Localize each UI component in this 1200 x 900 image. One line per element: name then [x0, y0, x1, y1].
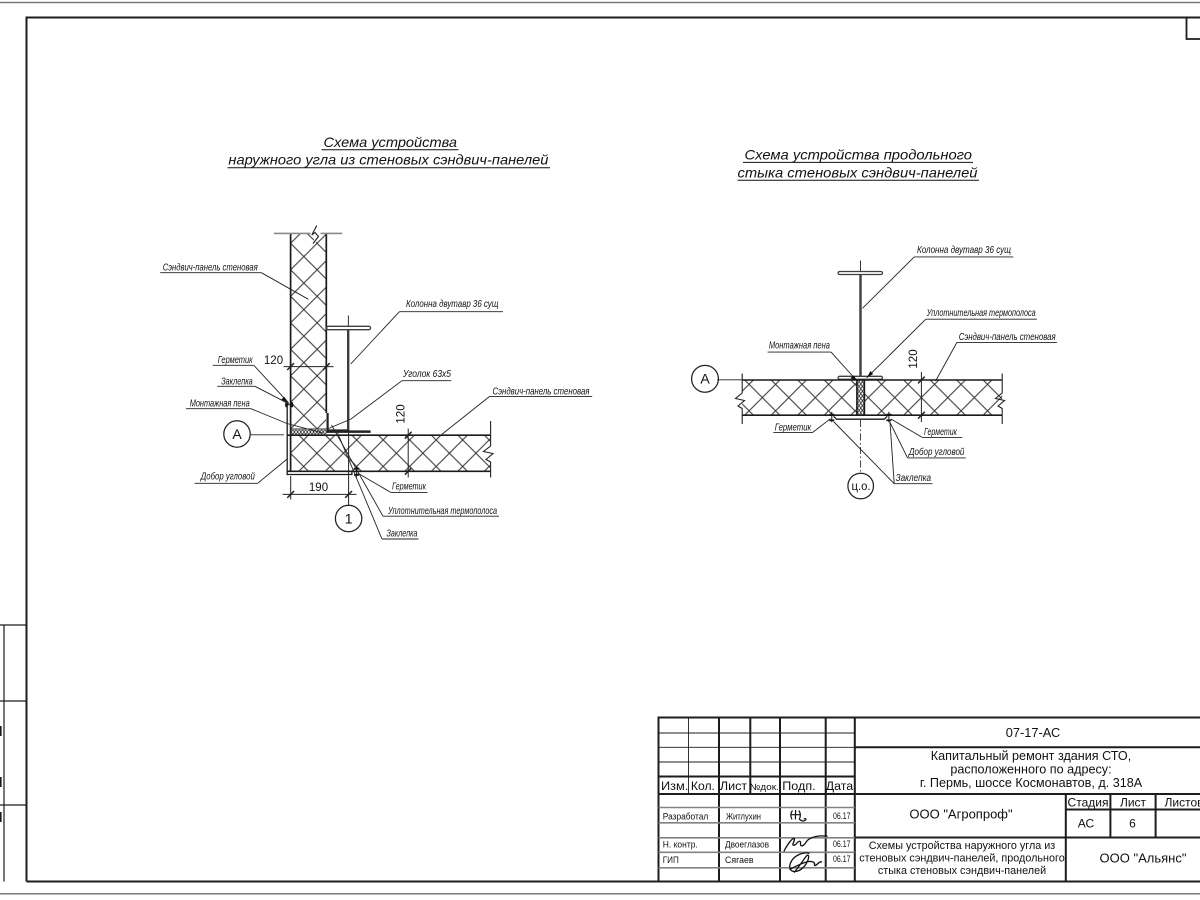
- svg-text:стеновых сэндвич-панелей, прод: стеновых сэндвич-панелей, продольного: [859, 853, 1064, 865]
- svg-text:Уголок 63х5: Уголок 63х5: [402, 368, 451, 380]
- svg-text:АС: АС: [1078, 817, 1095, 831]
- svg-text:Сэндвич-панель стеновая: Сэндвич-панель стеновая: [959, 331, 1056, 343]
- svg-text:А: А: [232, 426, 242, 442]
- svg-text:г. Пермь, шоссе Космонавтов, д: г. Пермь, шоссе Космонавтов, д. 318А: [920, 776, 1143, 790]
- svg-text:ГИП: ГИП: [663, 855, 679, 865]
- svg-text:Изм.: Изм.: [661, 781, 688, 793]
- svg-text:Заклепка: Заклепка: [221, 375, 253, 387]
- svg-text:06.17: 06.17: [833, 839, 851, 849]
- svg-text:Герметик: Герметик: [775, 422, 812, 434]
- svg-text:06.17: 06.17: [833, 811, 851, 821]
- svg-text:Кол.: Кол.: [691, 781, 715, 793]
- svg-text:Герметик: Герметик: [924, 426, 958, 438]
- svg-text:06.17: 06.17: [833, 854, 851, 864]
- svg-text:№док.: №док.: [750, 782, 779, 792]
- svg-text:Герметик: Герметик: [392, 481, 427, 493]
- svg-text:07-17-АС: 07-17-АС: [1006, 725, 1061, 740]
- svg-text:Подп.: Подп.: [782, 781, 815, 793]
- svg-text:ООО "Альянс": ООО "Альянс": [1100, 851, 1187, 866]
- svg-text:190: 190: [309, 482, 328, 494]
- svg-text:Колонна двутавр 36 сущ: Колонна двутавр 36 сущ: [406, 298, 499, 310]
- svg-text:расположенного по адресу:: расположенного по адресу:: [950, 763, 1111, 777]
- svg-text:ц.о.: ц.о.: [852, 481, 871, 493]
- svg-text:Схема устройства продольного: Схема устройства продольного: [745, 147, 973, 163]
- svg-text:Схемы устройства наружного угл: Схемы устройства наружного угла из: [869, 840, 1056, 852]
- svg-text:Заклепка: Заклепка: [896, 472, 932, 484]
- svg-text:Герметик: Герметик: [218, 354, 254, 366]
- svg-text:Лист: Лист: [720, 781, 748, 793]
- svg-text:Капитальный ремонт здания СТО,: Капитальный ремонт здания СТО,: [931, 749, 1131, 763]
- svg-text:Дата: Дата: [826, 781, 854, 793]
- svg-text:Разработал: Разработал: [663, 812, 709, 822]
- svg-text:120: 120: [264, 355, 283, 367]
- svg-text:Сэндвич-панель стеновая: Сэндвич-панель стеновая: [493, 385, 590, 397]
- svg-text:Добор угловой: Добор угловой: [908, 446, 964, 458]
- svg-text:Уплотнительная термополоса: Уплотнительная термополоса: [926, 307, 1036, 319]
- svg-text:Колонна двутавр 36 сущ: Колонна двутавр 36 сущ: [917, 244, 1011, 256]
- svg-text:Лист: Лист: [1120, 796, 1147, 810]
- svg-text:наружного угла из стеновых сэн: наружного угла из стеновых сэндвич-панел…: [228, 152, 548, 168]
- svg-text:Листов: Листов: [1165, 796, 1200, 810]
- svg-text:Н. контр.: Н. контр.: [663, 840, 698, 850]
- svg-text:1: 1: [345, 511, 353, 527]
- svg-text:6: 6: [1129, 817, 1136, 831]
- svg-text:120: 120: [908, 349, 920, 368]
- svg-text:Уплотнительная термополоса: Уплотнительная термополоса: [387, 505, 497, 517]
- svg-text:Заклепка: Заклепка: [387, 528, 418, 540]
- svg-text:А: А: [700, 371, 710, 387]
- svg-text:Двоеглазов: Двоеглазов: [725, 840, 769, 850]
- svg-text:Сягаев: Сягаев: [725, 855, 754, 865]
- svg-text:Добор угловой: Добор угловой: [200, 471, 255, 483]
- svg-text:Схема устройства: Схема устройства: [324, 134, 458, 150]
- svg-text:Монтажная пена: Монтажная пена: [769, 340, 830, 352]
- svg-text:Сэндвич-панель стеновая: Сэндвич-панель стеновая: [163, 262, 258, 274]
- svg-text:Житлухин: Житлухин: [726, 812, 761, 822]
- svg-text:120: 120: [396, 404, 408, 423]
- svg-text:стыка стеновых сэндвич-панелей: стыка стеновых сэндвич-панелей: [878, 865, 1046, 877]
- svg-text:Монтажная пена: Монтажная пена: [190, 398, 250, 410]
- svg-text:стыка стеновых сэндвич-панелей: стыка стеновых сэндвич-панелей: [738, 165, 978, 181]
- svg-text:Стадия: Стадия: [1068, 796, 1109, 810]
- svg-text:ООО "Агропроф": ООО "Агропроф": [909, 807, 1013, 822]
